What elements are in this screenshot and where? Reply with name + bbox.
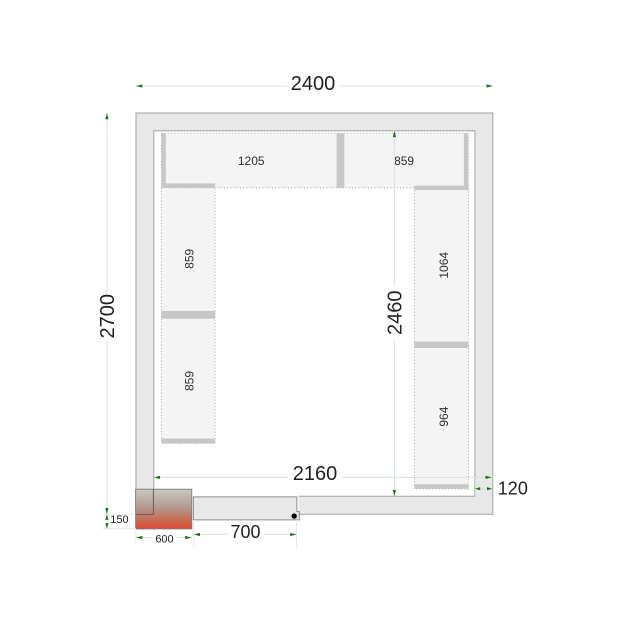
- svg-text:859: 859: [394, 154, 414, 168]
- svg-text:2700: 2700: [97, 294, 119, 339]
- svg-text:600: 600: [155, 534, 173, 546]
- svg-text:2460: 2460: [385, 291, 407, 336]
- svg-text:2160: 2160: [293, 463, 338, 485]
- svg-text:120: 120: [498, 479, 528, 499]
- svg-text:859: 859: [182, 371, 196, 391]
- svg-text:964: 964: [437, 406, 451, 426]
- svg-text:150: 150: [110, 514, 128, 526]
- svg-text:1064: 1064: [437, 252, 451, 279]
- svg-text:1205: 1205: [238, 154, 265, 168]
- svg-text:859: 859: [182, 248, 196, 268]
- svg-text:2400: 2400: [291, 73, 336, 95]
- svg-text:700: 700: [230, 522, 260, 542]
